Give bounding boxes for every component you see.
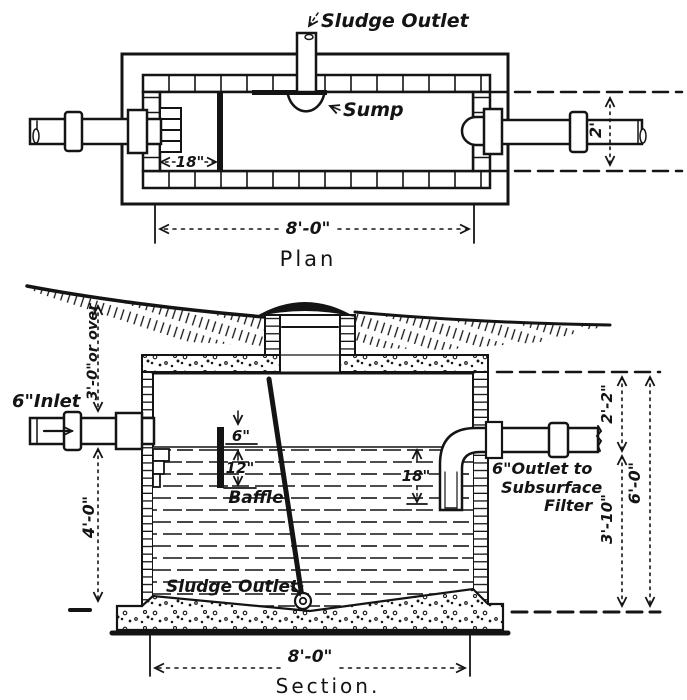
ground-left [27,286,265,346]
section-dim-length: 8'-0" [288,647,333,667]
ground-right [355,312,610,350]
outlet-label-line1: 6"Outlet to [492,459,592,478]
dim-baffle-above: 6" [232,427,250,445]
dim-total-depth: 6'-0" [625,462,644,504]
section-sludge-outlet-label: Sludge Outlet [166,577,299,597]
dim-baffle-below: 12" [226,459,255,477]
baffle-label: Baffle [228,488,283,508]
septic-tank-figure: 2' 18" 8'-0" Sludge Outlet Sump Plan [0,0,687,700]
inlet-label: 6"Inlet [12,391,82,412]
plan-dim-length: 8'-0" [286,219,331,239]
outlet-label-line3: Filter [544,496,593,515]
dim-water-depth: 3'-10" [598,494,616,544]
plan-sludge-outlet-leader [309,13,318,26]
dim-outlet-submerge: 18" [402,467,431,485]
plan-baffle [217,92,223,171]
top-slab-right [340,355,488,372]
plan-sludge-pipe [297,33,316,92]
plan-dim-baffle: 18" [176,153,205,171]
outlet-label-line2: Subsurface [501,478,602,497]
plan-view: 2' 18" 8'-0" Sludge Outlet Sump Plan [30,10,682,271]
dim-air-space: 2'-2" [598,384,616,424]
plan-title: Plan [280,247,337,271]
section-baffle [217,427,224,488]
plan-sludge-outlet-label: Sludge Outlet [321,10,470,32]
section-title: Section. [276,674,381,698]
plan-inlet-pipe [30,110,161,153]
tank-wall-left [142,372,153,610]
plan-outlet-pipe [462,109,646,154]
plan-dim-width: 2' [586,122,605,138]
dim-inlet-depth: 4'-0" [79,496,98,539]
plan-sump-label: Sump [343,99,404,121]
tank-wall-right [473,372,488,605]
plan-inlet-brick-stack [160,108,181,152]
septic-tank-drawing: 2' 18" 8'-0" Sludge Outlet Sump Plan [0,0,687,700]
top-slab-left [142,355,280,372]
section-inlet-pipe [30,412,154,450]
section-view: 3'-0"or over 4'-0" 6" [12,286,660,698]
dim-cover-depth: 3'-0"or over [85,303,101,401]
